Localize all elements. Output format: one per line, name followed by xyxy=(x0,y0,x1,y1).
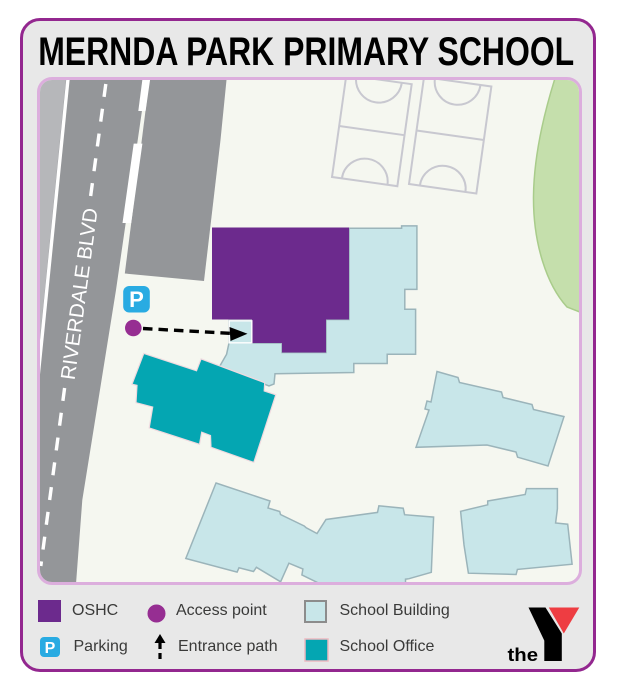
svg-text:P: P xyxy=(45,640,56,657)
svg-text:the: the xyxy=(508,644,539,663)
